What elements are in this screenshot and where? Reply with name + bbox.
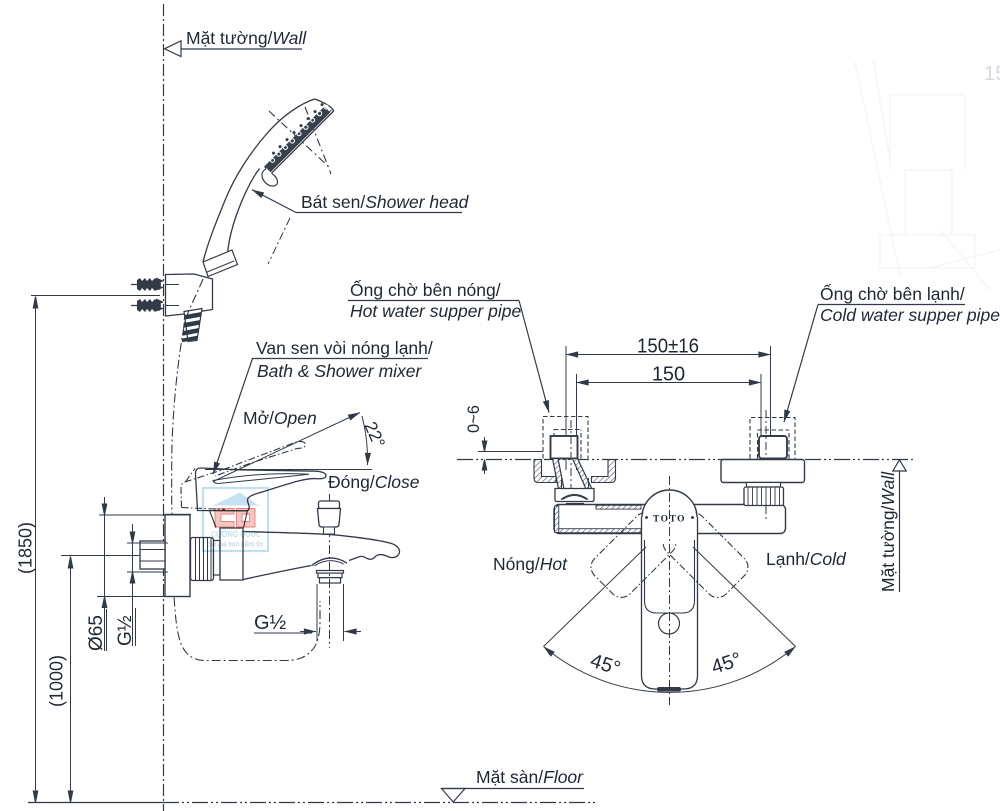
svg-text:(1000): (1000) [47, 655, 67, 707]
svg-text:0~6: 0~6 [465, 405, 483, 433]
svg-text:Mở/Open: Mở/Open [243, 408, 317, 428]
svg-text:150: 150 [652, 364, 685, 386]
svg-text:Ø65: Ø65 [86, 615, 107, 651]
svg-text:Cold water supper pipe: Cold water supper pipe [820, 305, 1000, 325]
svg-text:150±16: 150±16 [637, 336, 699, 358]
svg-text:Hot water supper pipe: Hot water supper pipe [350, 301, 521, 321]
svg-text:G½: G½ [254, 612, 287, 634]
svg-text:Mặt sàn/Floor: Mặt sàn/Floor [476, 767, 584, 787]
svg-text:G½: G½ [115, 615, 136, 646]
svg-text:Ống chờ bên lạnh/: Ống chờ bên lạnh/ [820, 283, 965, 304]
svg-text:22°: 22° [360, 418, 389, 450]
svg-text:Bát sen/Shower head: Bát sen/Shower head [301, 192, 470, 212]
svg-text:Sứ giá trọn niềm tin: Sứ giá trọn niềm tin [208, 540, 263, 549]
svg-text:Lạnh/Cold: Lạnh/Cold [766, 549, 847, 569]
svg-text:Đóng/Close: Đóng/Close [328, 472, 420, 492]
svg-text:CƯỜNG QUỐC: CƯỜNG QUỐC [211, 528, 261, 539]
svg-text:Nóng/Hot: Nóng/Hot [493, 554, 568, 574]
svg-text:Van sen vòi nóng lạnh/: Van sen vòi nóng lạnh/ [256, 338, 433, 358]
svg-text:(1850): (1850) [16, 522, 36, 574]
svg-text:Bath & Shower mixer: Bath & Shower mixer [257, 361, 423, 381]
svg-text:Mặt tường/Wall: Mặt tường/Wall [186, 28, 307, 48]
svg-text:45°: 45° [709, 648, 745, 678]
svg-text:Mặt tường/Wall: Mặt tường/Wall [878, 471, 898, 592]
svg-text:Ống chờ bên nóng/: Ống chờ bên nóng/ [350, 279, 501, 300]
svg-text:45°: 45° [587, 650, 623, 680]
svg-text:150: 150 [984, 63, 1000, 85]
